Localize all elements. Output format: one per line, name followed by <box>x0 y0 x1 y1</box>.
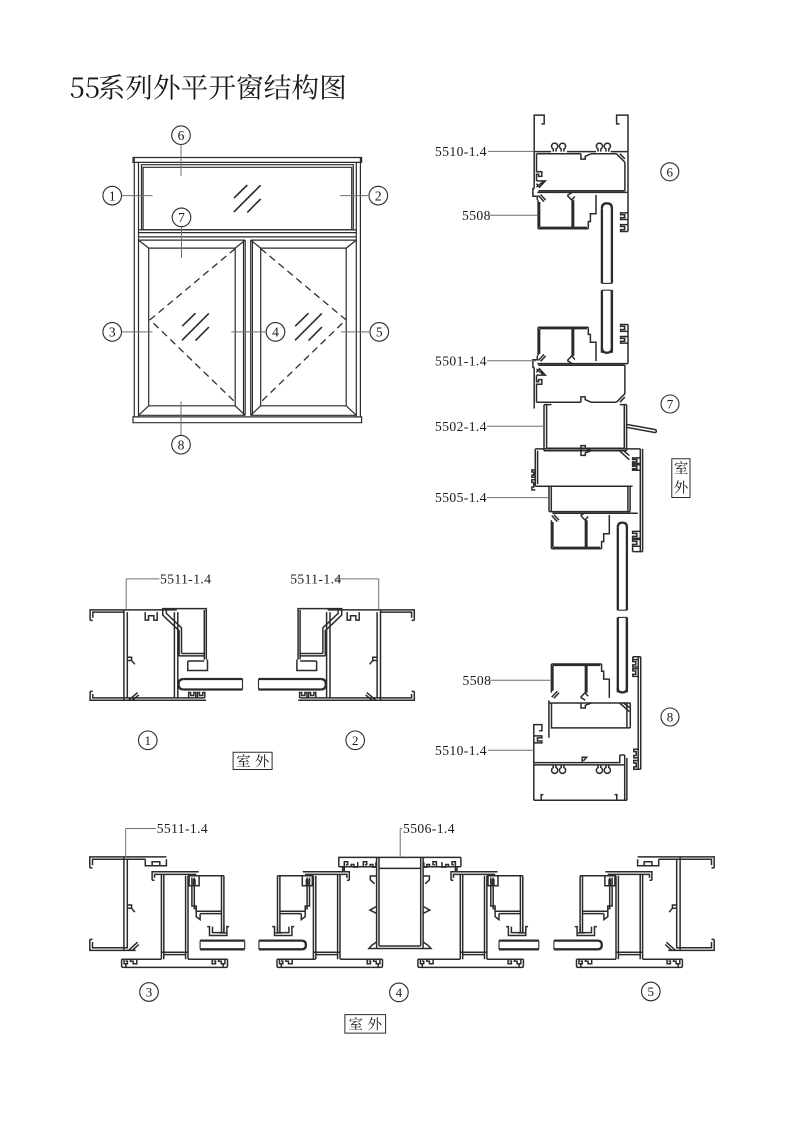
svg-text:5: 5 <box>648 984 655 999</box>
svg-text:6: 6 <box>667 164 674 179</box>
svg-text:1: 1 <box>109 188 116 203</box>
svg-text:5510-1.4: 5510-1.4 <box>435 743 487 758</box>
svg-text:4: 4 <box>272 325 279 340</box>
svg-text:2: 2 <box>352 733 359 748</box>
svg-text:5508: 5508 <box>463 673 492 688</box>
svg-text:5511-1.4: 5511-1.4 <box>290 572 341 587</box>
svg-text:1: 1 <box>145 733 152 748</box>
svg-text:5510-1.4: 5510-1.4 <box>435 144 487 159</box>
svg-text:7: 7 <box>667 396 674 411</box>
svg-text:5505-1.4: 5505-1.4 <box>435 490 487 505</box>
svg-text:7: 7 <box>178 210 185 225</box>
svg-text:4: 4 <box>396 985 403 1000</box>
svg-text:5502-1.4: 5502-1.4 <box>435 419 487 434</box>
svg-text:5: 5 <box>376 325 383 340</box>
svg-text:3: 3 <box>146 984 153 999</box>
svg-text:5506-1.4: 5506-1.4 <box>403 821 455 836</box>
svg-text:8: 8 <box>667 709 674 724</box>
svg-text:5511-1.4: 5511-1.4 <box>160 572 211 587</box>
svg-text:5508: 5508 <box>462 208 491 223</box>
svg-text:5501-1.4: 5501-1.4 <box>435 353 487 368</box>
svg-text:2: 2 <box>375 188 382 203</box>
svg-text:6: 6 <box>178 128 185 143</box>
svg-text:5511-1.4: 5511-1.4 <box>157 821 208 836</box>
svg-text:8: 8 <box>178 437 185 452</box>
svg-text:3: 3 <box>109 325 116 340</box>
